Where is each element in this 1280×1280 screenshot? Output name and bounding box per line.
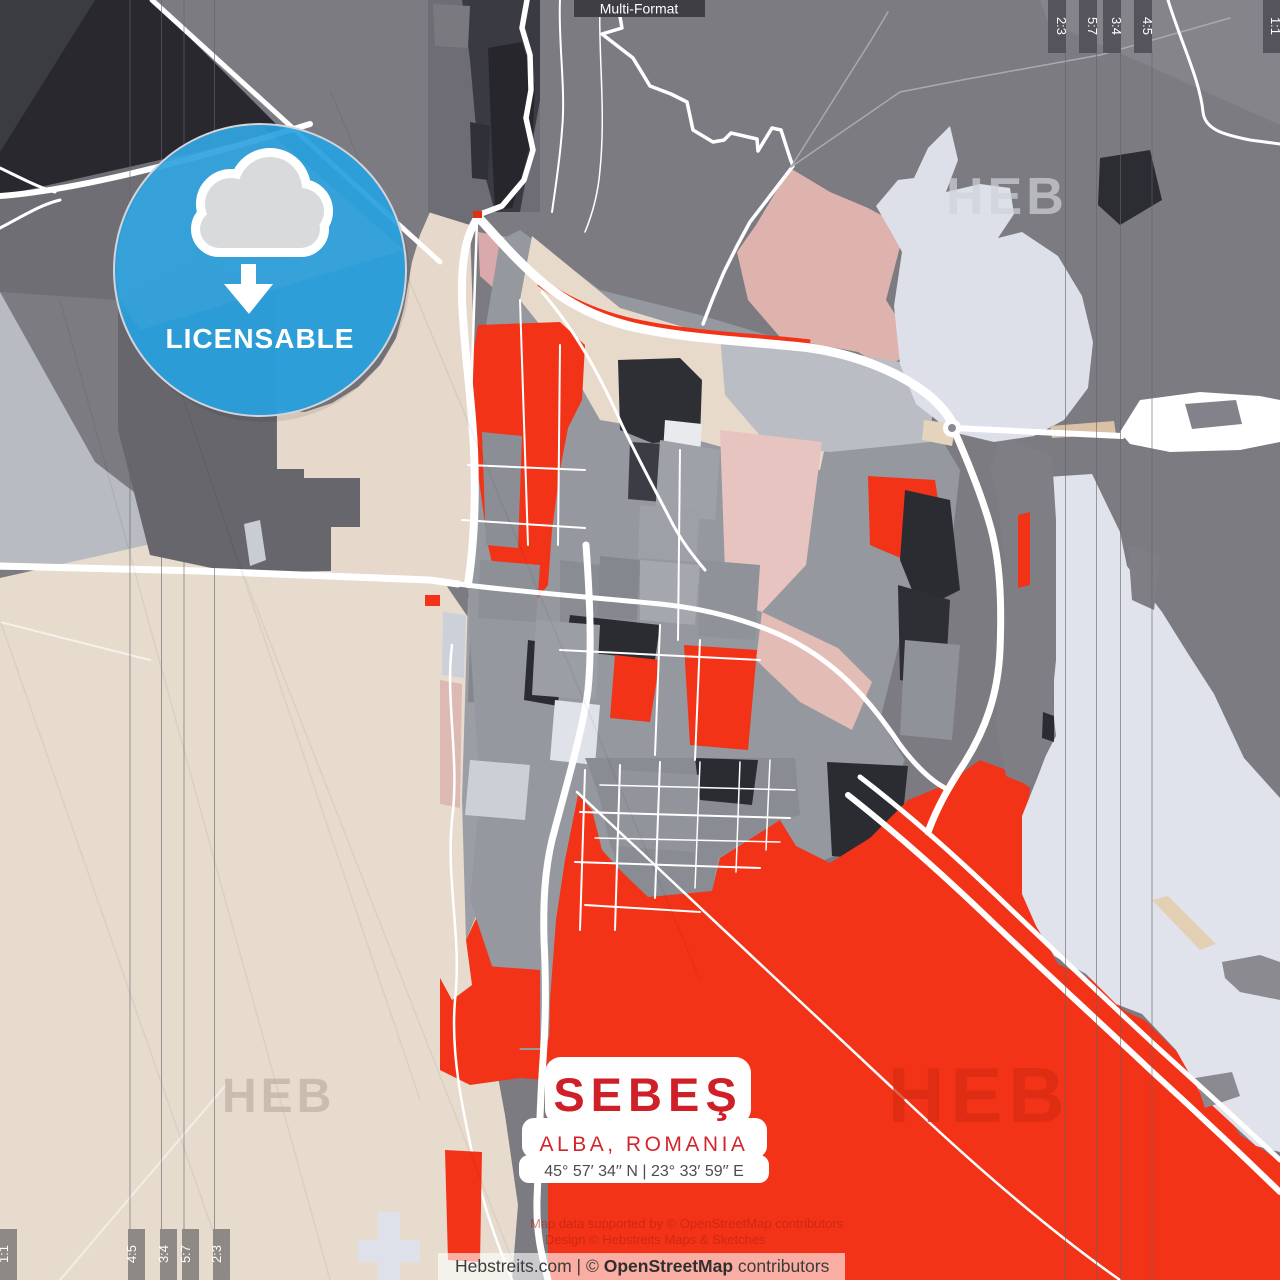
svg-text:HEB: HEB [222, 1070, 335, 1123]
svg-text:3:4: 3:4 [156, 1245, 171, 1263]
svg-text:45° 57′ 34′′ N | 23° 33′: 45° 57′ 34′′ N | 23° 33′ 59′′ E [544, 1163, 744, 1180]
svg-text:SEBEŞ: SEBEŞ [553, 1068, 742, 1121]
svg-text:HEB: HEB [888, 1051, 1071, 1139]
svg-text:5:7: 5:7 [1085, 17, 1100, 35]
svg-text:2:3: 2:3 [209, 1245, 224, 1263]
svg-text:Hebstreits.com | © OpenStreetM: Hebstreits.com | © OpenStreetMap contrib… [455, 1256, 830, 1276]
svg-text:1:1: 1:1 [0, 1245, 11, 1263]
svg-text:Multi-Format: Multi-Format [600, 1, 679, 17]
svg-text:LICENSABLE: LICENSABLE [166, 323, 355, 354]
svg-text:2:3: 2:3 [1054, 17, 1069, 35]
svg-text:Map data supported by © OpenSt: Map data supported by © OpenStreetMap co… [530, 1216, 844, 1231]
svg-text:Design © Hebstreits Maps & Ske: Design © Hebstreits Maps & Sketches [545, 1232, 766, 1247]
svg-text:HEB: HEB [946, 168, 1068, 226]
svg-text:5:7: 5:7 [178, 1245, 193, 1263]
svg-text:4:5: 4:5 [124, 1245, 139, 1263]
svg-text:1:1: 1:1 [1268, 17, 1280, 35]
svg-text:ALBA, ROMANIA: ALBA, ROMANIA [540, 1133, 749, 1156]
svg-text:4:5: 4:5 [1140, 17, 1155, 35]
svg-text:3:4: 3:4 [1109, 17, 1124, 35]
